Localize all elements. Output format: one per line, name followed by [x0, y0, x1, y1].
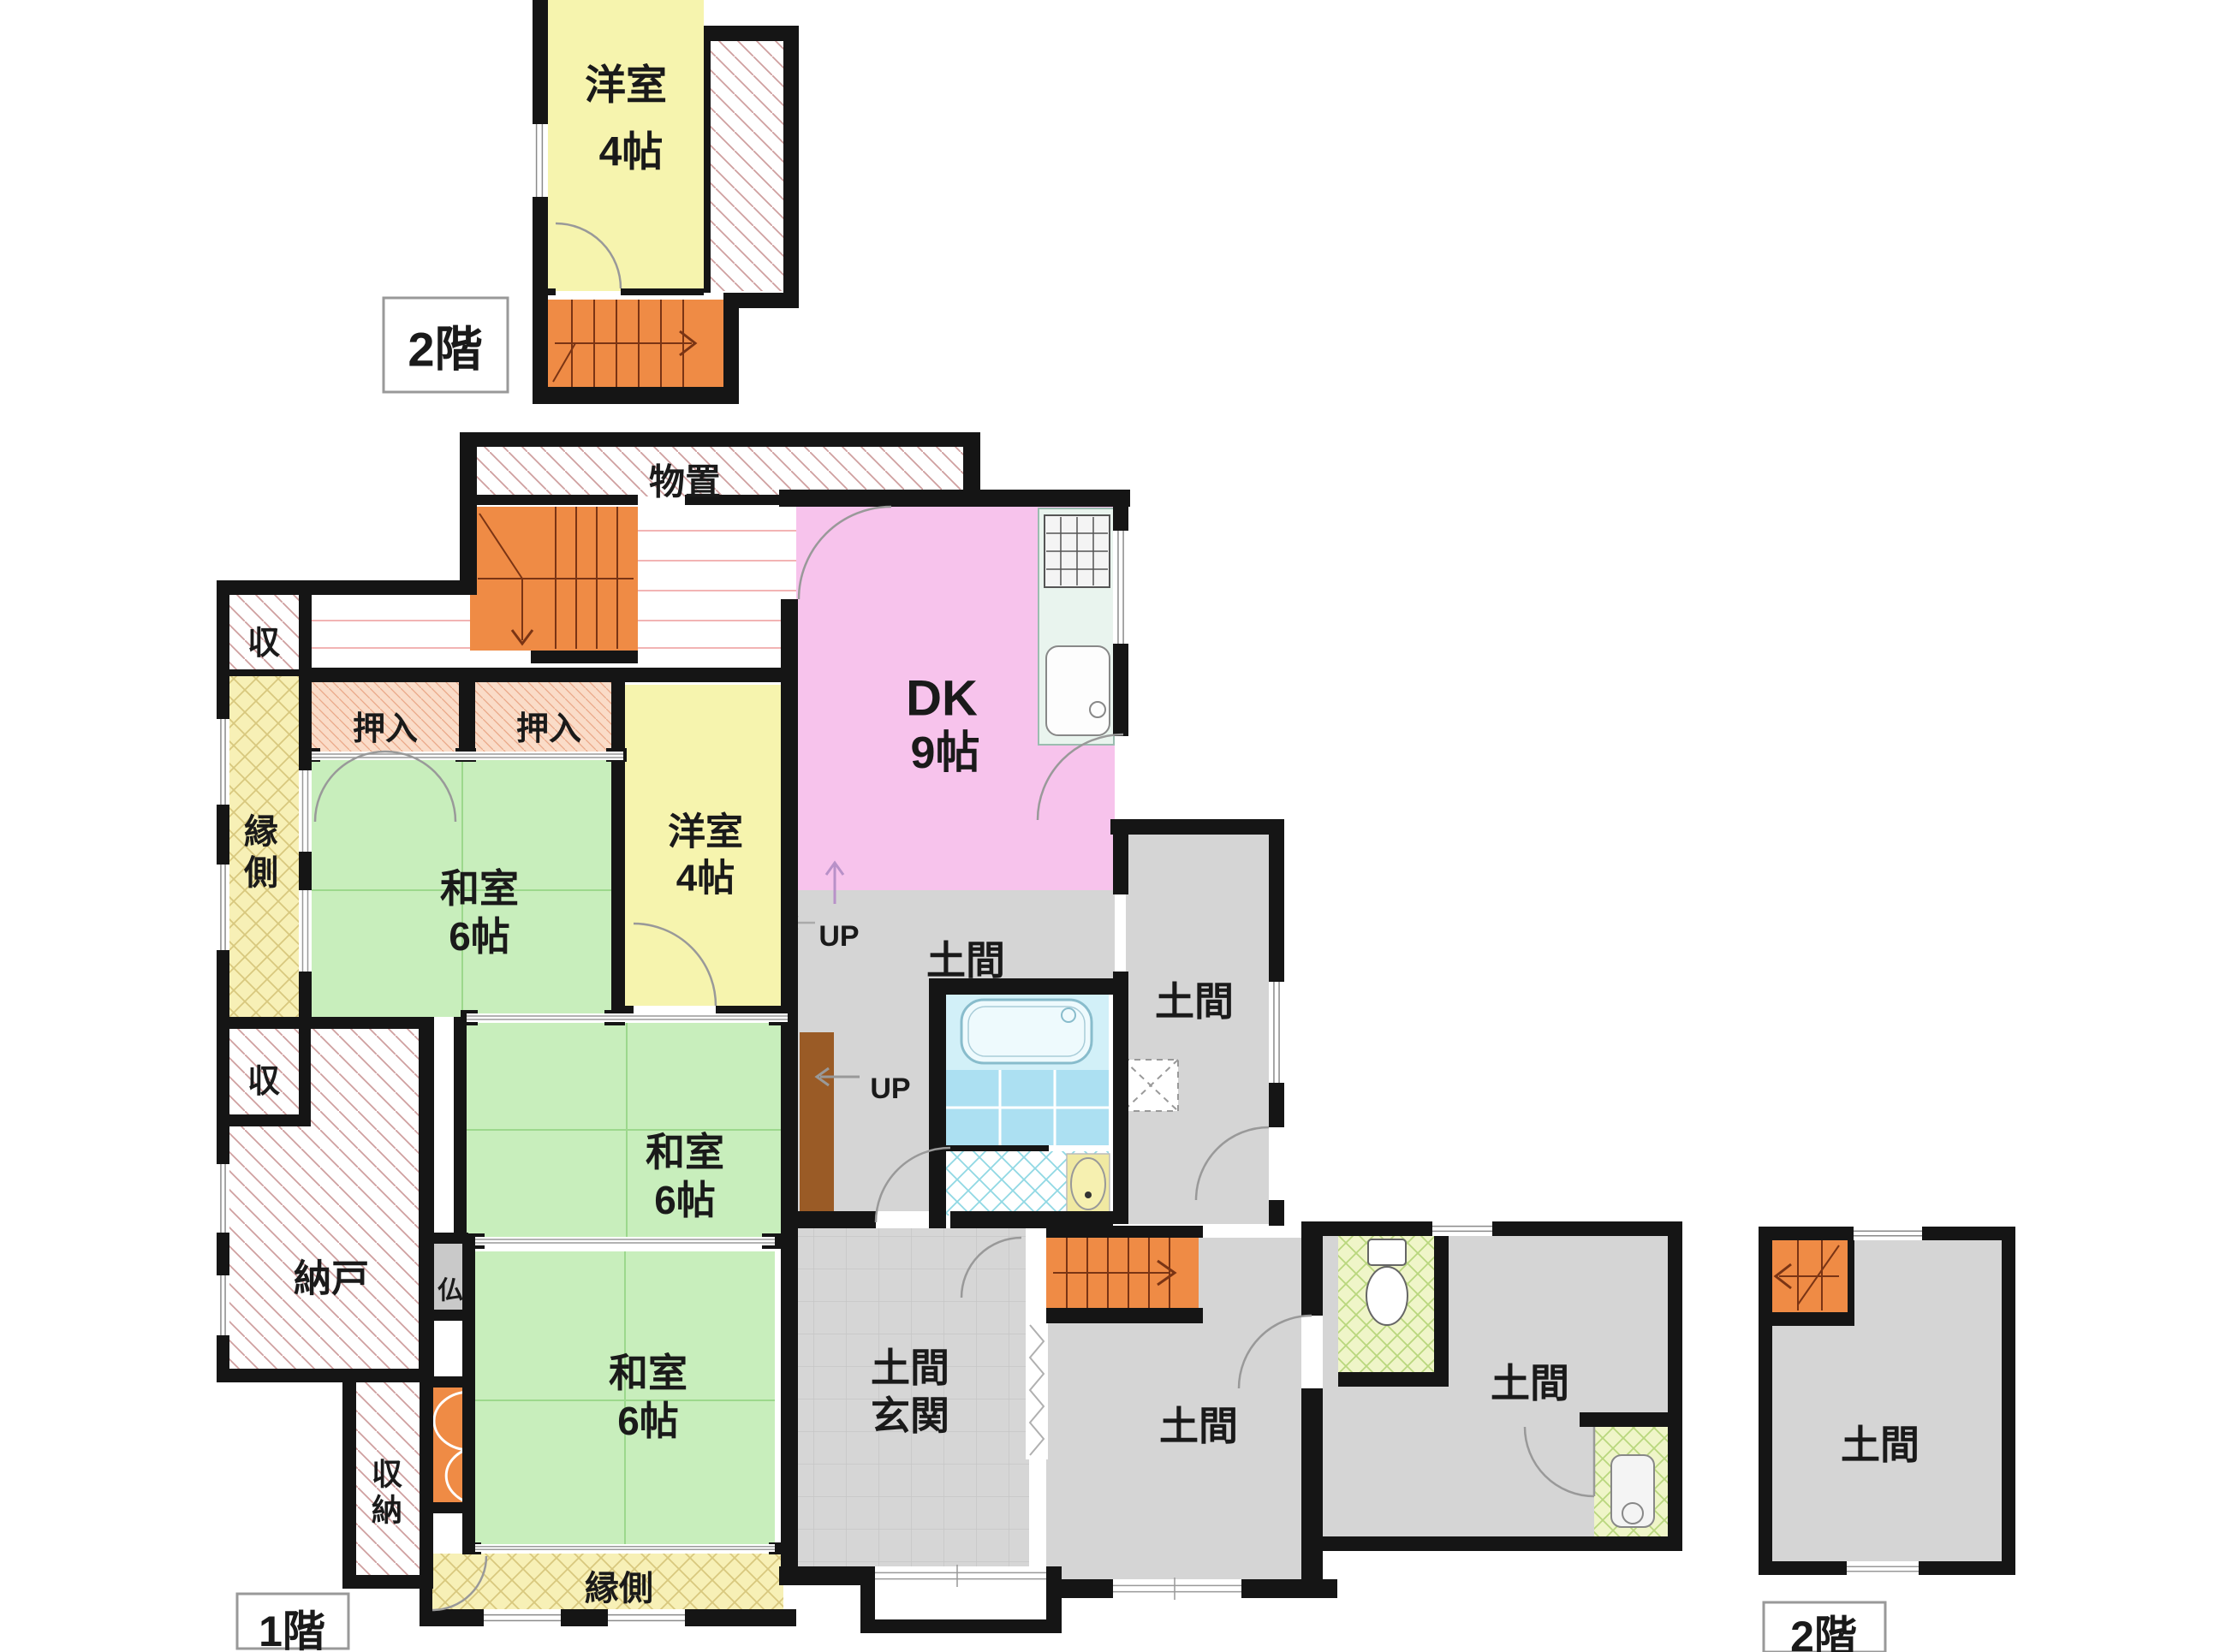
wall	[1323, 1221, 1432, 1236]
room-label: 玄関	[871, 1394, 949, 1438]
room-label: 和室	[440, 866, 519, 911]
wall	[1772, 1312, 1854, 1326]
wall	[1046, 1566, 1062, 1633]
sliding-door	[1847, 1563, 1919, 1575]
wall	[1046, 1308, 1203, 1323]
basin-drain	[1085, 1191, 1092, 1198]
wall	[1759, 1227, 1772, 1575]
room-label: 仏	[437, 1277, 463, 1305]
room-label: 押入	[516, 711, 581, 747]
room-label: 納戸	[294, 1258, 369, 1300]
sliding-door	[475, 1544, 775, 1552]
window	[1854, 1227, 1922, 1240]
wall	[460, 495, 638, 505]
toilet-tank	[1368, 1239, 1406, 1265]
room-label: UP	[818, 920, 859, 953]
wall	[685, 1609, 796, 1626]
room-label: 2階	[1790, 1613, 1857, 1652]
wall	[783, 26, 799, 308]
wall	[1759, 1227, 1854, 1240]
room-label: 収	[372, 1457, 402, 1492]
water-heater	[1611, 1455, 1654, 1527]
wall	[1338, 1372, 1449, 1387]
wall	[420, 1609, 484, 1626]
room-label: 側	[243, 854, 278, 892]
room-label: 6帖	[617, 1399, 679, 1443]
room-label: 2階	[408, 323, 482, 377]
room-label: 縁側	[585, 1570, 653, 1607]
room-2f-closet	[709, 41, 783, 291]
wall	[1301, 1221, 1323, 1316]
sliding-door	[467, 1013, 788, 1022]
wall	[1046, 1226, 1203, 1238]
window	[1269, 982, 1284, 1083]
wall	[432, 1376, 473, 1388]
sliding-door	[299, 770, 312, 852]
wall	[1668, 1221, 1682, 1551]
wall	[781, 490, 798, 507]
wall	[781, 599, 798, 1566]
wall	[611, 668, 625, 1006]
wall	[217, 1369, 434, 1382]
window	[608, 1609, 685, 1626]
room-label: 収	[247, 1064, 280, 1100]
room-label: 洋室	[668, 811, 743, 853]
wall	[548, 288, 556, 295]
sink-icon	[1046, 646, 1110, 735]
wall	[1323, 1536, 1682, 1551]
wall	[1580, 1412, 1682, 1427]
room-label: 土間	[1841, 1423, 1919, 1467]
window	[531, 124, 548, 197]
wall	[561, 1609, 608, 1626]
wall	[946, 1145, 1049, 1151]
wall	[217, 580, 229, 1382]
wall	[460, 432, 980, 447]
wall	[531, 651, 638, 663]
wall	[1919, 1561, 2015, 1575]
wall	[1113, 490, 1128, 531]
room-label: 4帖	[676, 858, 735, 900]
wall	[217, 1114, 311, 1126]
room-label: 和室	[646, 1130, 724, 1174]
wall	[1269, 819, 1284, 982]
wall	[460, 432, 477, 595]
room-label: 9帖	[911, 728, 980, 778]
wall	[299, 852, 312, 890]
room-label: UP	[870, 1073, 910, 1105]
floor-plan-svg: 洋室4帖2階物置収縁側押入押入和室6帖洋室4帖DK9帖UP土間UP土間収和室6帖…	[0, 0, 2226, 1652]
room-label: 4帖	[599, 130, 664, 175]
step-strip	[1026, 1228, 1048, 1459]
wall	[1922, 1227, 2015, 1240]
wall	[459, 682, 475, 753]
room-label: 和室	[609, 1351, 687, 1395]
room-label: 土間	[1155, 979, 1234, 1024]
wood-step	[800, 1032, 834, 1221]
room-label: 6帖	[449, 914, 510, 959]
room-label: 1階	[259, 1607, 325, 1652]
wall	[1046, 1579, 1113, 1598]
sliding-door	[875, 1568, 1046, 1584]
room-label: DK	[906, 671, 978, 727]
room-label: 土間	[1491, 1361, 1569, 1405]
window	[217, 1164, 229, 1233]
room-label: 物置	[649, 462, 721, 502]
wall	[1434, 1221, 1449, 1387]
wall	[2002, 1227, 2015, 1575]
room-label: 収	[247, 626, 280, 662]
wall	[229, 669, 299, 676]
wall	[299, 972, 312, 1017]
wall	[1301, 1388, 1323, 1579]
room-label: 洋室	[585, 63, 667, 109]
wall	[299, 1017, 311, 1126]
wall	[533, 387, 739, 404]
wall	[217, 580, 477, 595]
wall	[1759, 1561, 1847, 1575]
toilet-bowl	[1366, 1267, 1408, 1325]
window	[217, 1275, 229, 1335]
wall	[779, 490, 1130, 507]
wall	[217, 1017, 434, 1029]
basin-icon	[1071, 1158, 1105, 1209]
wall	[533, 0, 548, 404]
window	[484, 1609, 561, 1626]
wall	[1269, 1081, 1284, 1127]
room-label: 土間	[1159, 1404, 1238, 1448]
porch	[875, 1585, 1046, 1619]
wall	[432, 1502, 473, 1513]
wall	[454, 1017, 467, 1239]
rooms-layer	[229, 0, 2002, 1619]
sliding-door	[299, 890, 312, 972]
wall	[1492, 1221, 1682, 1236]
wall	[860, 1619, 1062, 1633]
wall	[432, 1310, 468, 1321]
wall	[621, 288, 704, 295]
window	[217, 865, 229, 950]
window	[1113, 531, 1128, 644]
wall	[419, 1023, 434, 1382]
wall	[794, 1211, 876, 1228]
wall	[963, 432, 980, 496]
window	[217, 719, 229, 805]
wall	[342, 1369, 356, 1588]
wall	[1113, 972, 1128, 1224]
doma-vertical	[1126, 835, 1269, 1224]
sliding-door	[475, 1237, 775, 1245]
room-label: 土間	[871, 1346, 949, 1390]
room-label: 押入	[353, 711, 418, 747]
wall	[929, 978, 946, 1228]
room-label: 納	[372, 1493, 402, 1528]
wall	[1848, 1240, 1854, 1312]
wall	[1241, 1579, 1337, 1598]
sliding-door	[1113, 1581, 1241, 1596]
room-label: 6帖	[654, 1178, 716, 1222]
wall	[704, 41, 711, 293]
window	[1432, 1221, 1492, 1236]
wall	[299, 668, 798, 682]
room-label: 土間	[926, 938, 1005, 983]
wall	[1269, 1200, 1284, 1226]
wall	[299, 595, 312, 770]
wall	[1113, 642, 1128, 736]
wall	[1110, 819, 1284, 835]
room-label: 縁	[244, 813, 278, 851]
floor-plan: 洋室4帖2階物置収縁側押入押入和室6帖洋室4帖DK9帖UP土間UP土間収和室6帖…	[0, 0, 2226, 1652]
